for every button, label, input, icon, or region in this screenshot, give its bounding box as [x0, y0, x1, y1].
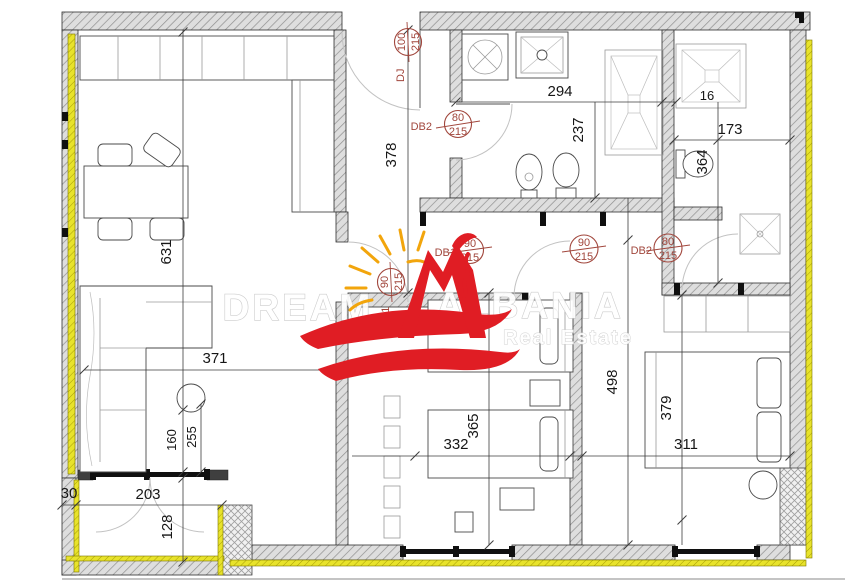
dim-balcony-depth: 128	[159, 514, 176, 539]
svg-text:215: 215	[659, 250, 677, 262]
door-label-bathroom: DB2 80 215	[411, 111, 480, 139]
svg-text:100: 100	[396, 33, 408, 51]
sink	[516, 32, 568, 78]
windows	[90, 469, 760, 557]
svg-text:215: 215	[393, 273, 405, 291]
bedroom2-wardrobe	[384, 396, 400, 538]
dim-balcony-width: 203	[135, 486, 160, 503]
dim-bath-width: 294	[547, 83, 572, 100]
dim-bed-length: 379	[658, 395, 675, 420]
round-table	[749, 471, 777, 499]
dim-wall-gap: 16	[700, 88, 714, 103]
skylight	[740, 214, 780, 254]
svg-text:215: 215	[575, 251, 593, 263]
desk	[500, 488, 534, 510]
svg-text:215: 215	[449, 126, 467, 138]
toilet	[553, 153, 579, 198]
dim-bedroom2-depth: 365	[465, 413, 482, 438]
shower-tray	[605, 50, 663, 155]
bedroom1-door-arc	[682, 234, 738, 290]
dim-window-height: 255	[184, 426, 199, 448]
stool	[455, 512, 473, 532]
dim-wc-depth: 364	[694, 149, 711, 174]
dim-window-width: 160	[164, 429, 179, 451]
svg-text:215: 215	[410, 33, 422, 51]
dim-entry-depth: 378	[383, 142, 400, 167]
svg-text:90: 90	[379, 276, 391, 288]
dim-balcony-side: 30	[61, 485, 78, 502]
dim-wc-width: 173	[717, 121, 742, 138]
column	[780, 468, 806, 545]
dim-kitchen-depth: 631	[158, 239, 175, 264]
bedroom2-window	[400, 546, 515, 557]
bedroom1-window	[672, 546, 760, 557]
bidet	[516, 154, 542, 198]
svg-text:DJ: DJ	[395, 69, 407, 82]
svg-text:80: 80	[662, 236, 674, 248]
dim-bedroom1-width: 311	[674, 436, 698, 453]
dim-bedroom1-depth: 498	[604, 369, 621, 394]
nightstand	[530, 380, 560, 406]
door-label-bedroom1: DB2 80 215	[631, 234, 690, 262]
svg-text:80: 80	[452, 112, 464, 124]
floor-plan-screenshot: 631 160 255 128 371 203 30 294 16 237 37…	[0, 0, 858, 588]
watermark-subtitle: Real Estate	[503, 327, 633, 349]
dining-table	[84, 131, 188, 240]
door-label-bedroom2: 90 215	[562, 235, 606, 263]
svg-text:90: 90	[578, 237, 590, 249]
washing-machine	[462, 34, 508, 80]
dim-bath-depth: 237	[570, 117, 587, 142]
svg-text:DB2: DB2	[411, 121, 432, 133]
door-swings	[96, 30, 738, 532]
bedroom1-wardrobe	[664, 296, 790, 332]
dim-living-width: 371	[202, 350, 227, 367]
